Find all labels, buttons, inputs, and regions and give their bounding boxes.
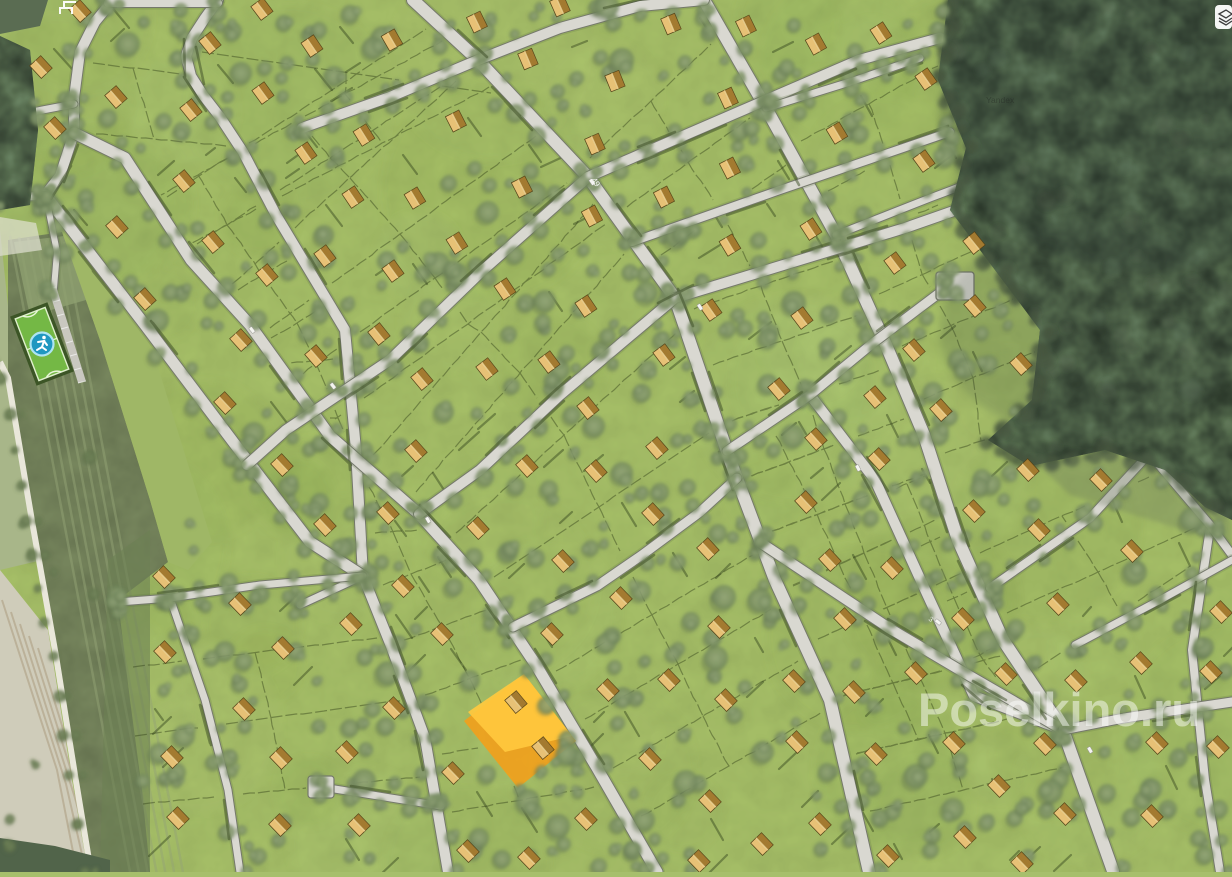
svg-text:Poselkino.ru: Poselkino.ru: [918, 683, 1200, 736]
svg-text:Yandex: Yandex: [986, 95, 1015, 105]
